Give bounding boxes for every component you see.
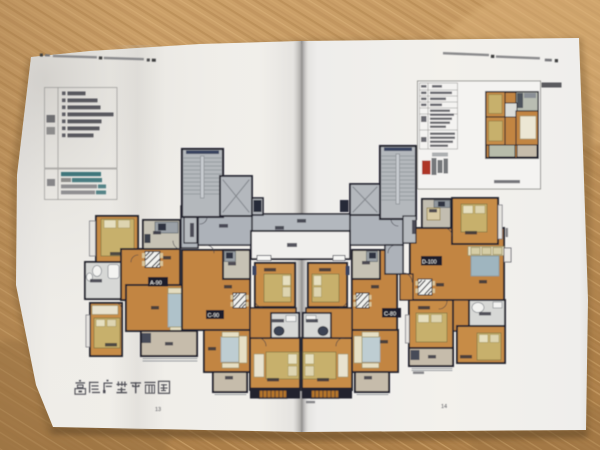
svg-text:14: 14 [441, 404, 447, 410]
svg-text:C-90: C-90 [208, 313, 220, 319]
svg-text:A-90: A-90 [150, 281, 162, 287]
svg-text:13: 13 [155, 407, 161, 413]
svg-text:D-100: D-100 [422, 260, 437, 266]
svg-text:C-80: C-80 [384, 312, 396, 318]
